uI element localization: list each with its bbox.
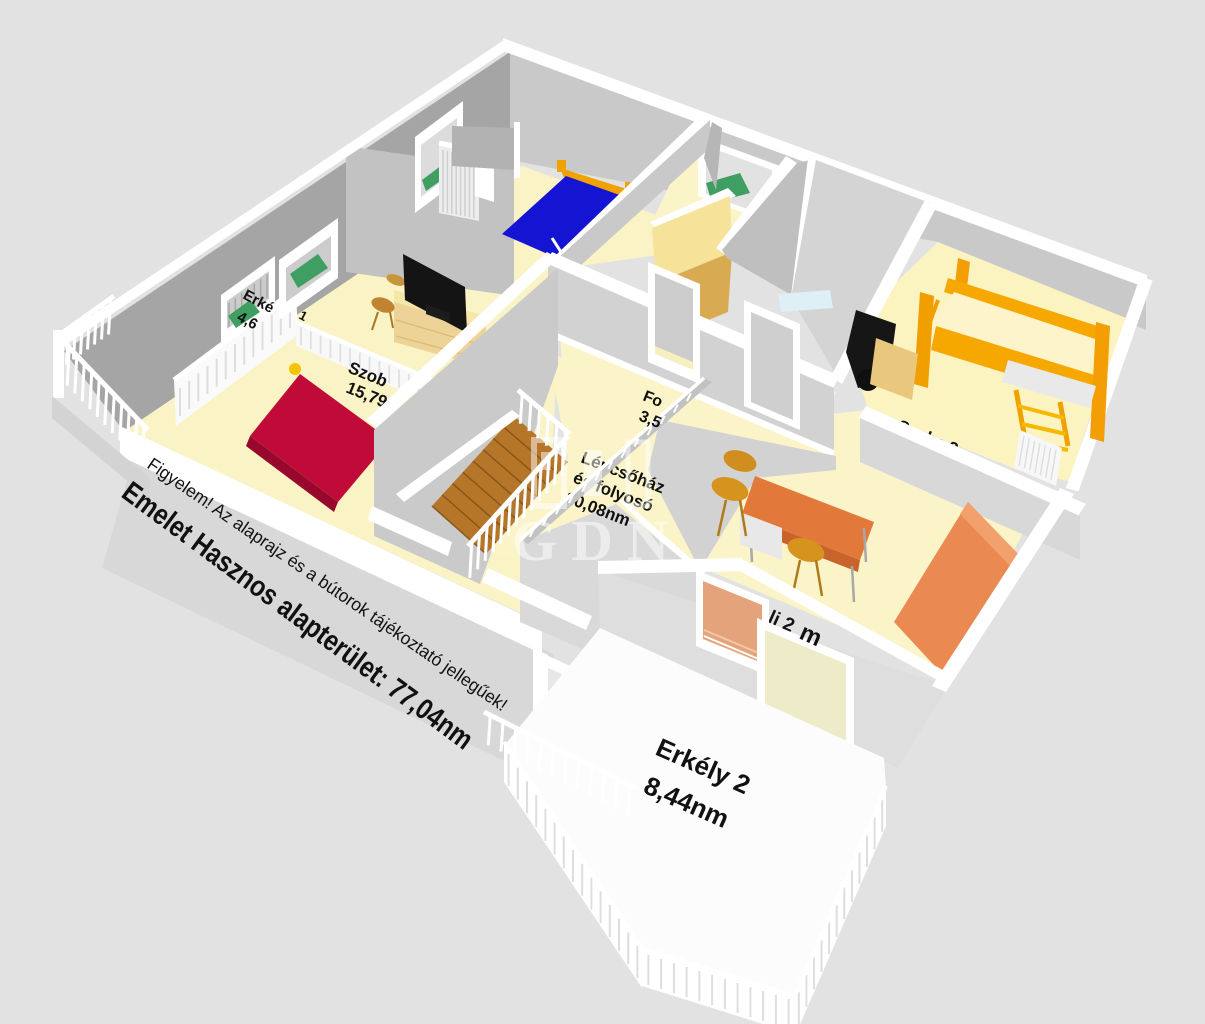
svg-text:GDN: GDN (512, 508, 683, 573)
